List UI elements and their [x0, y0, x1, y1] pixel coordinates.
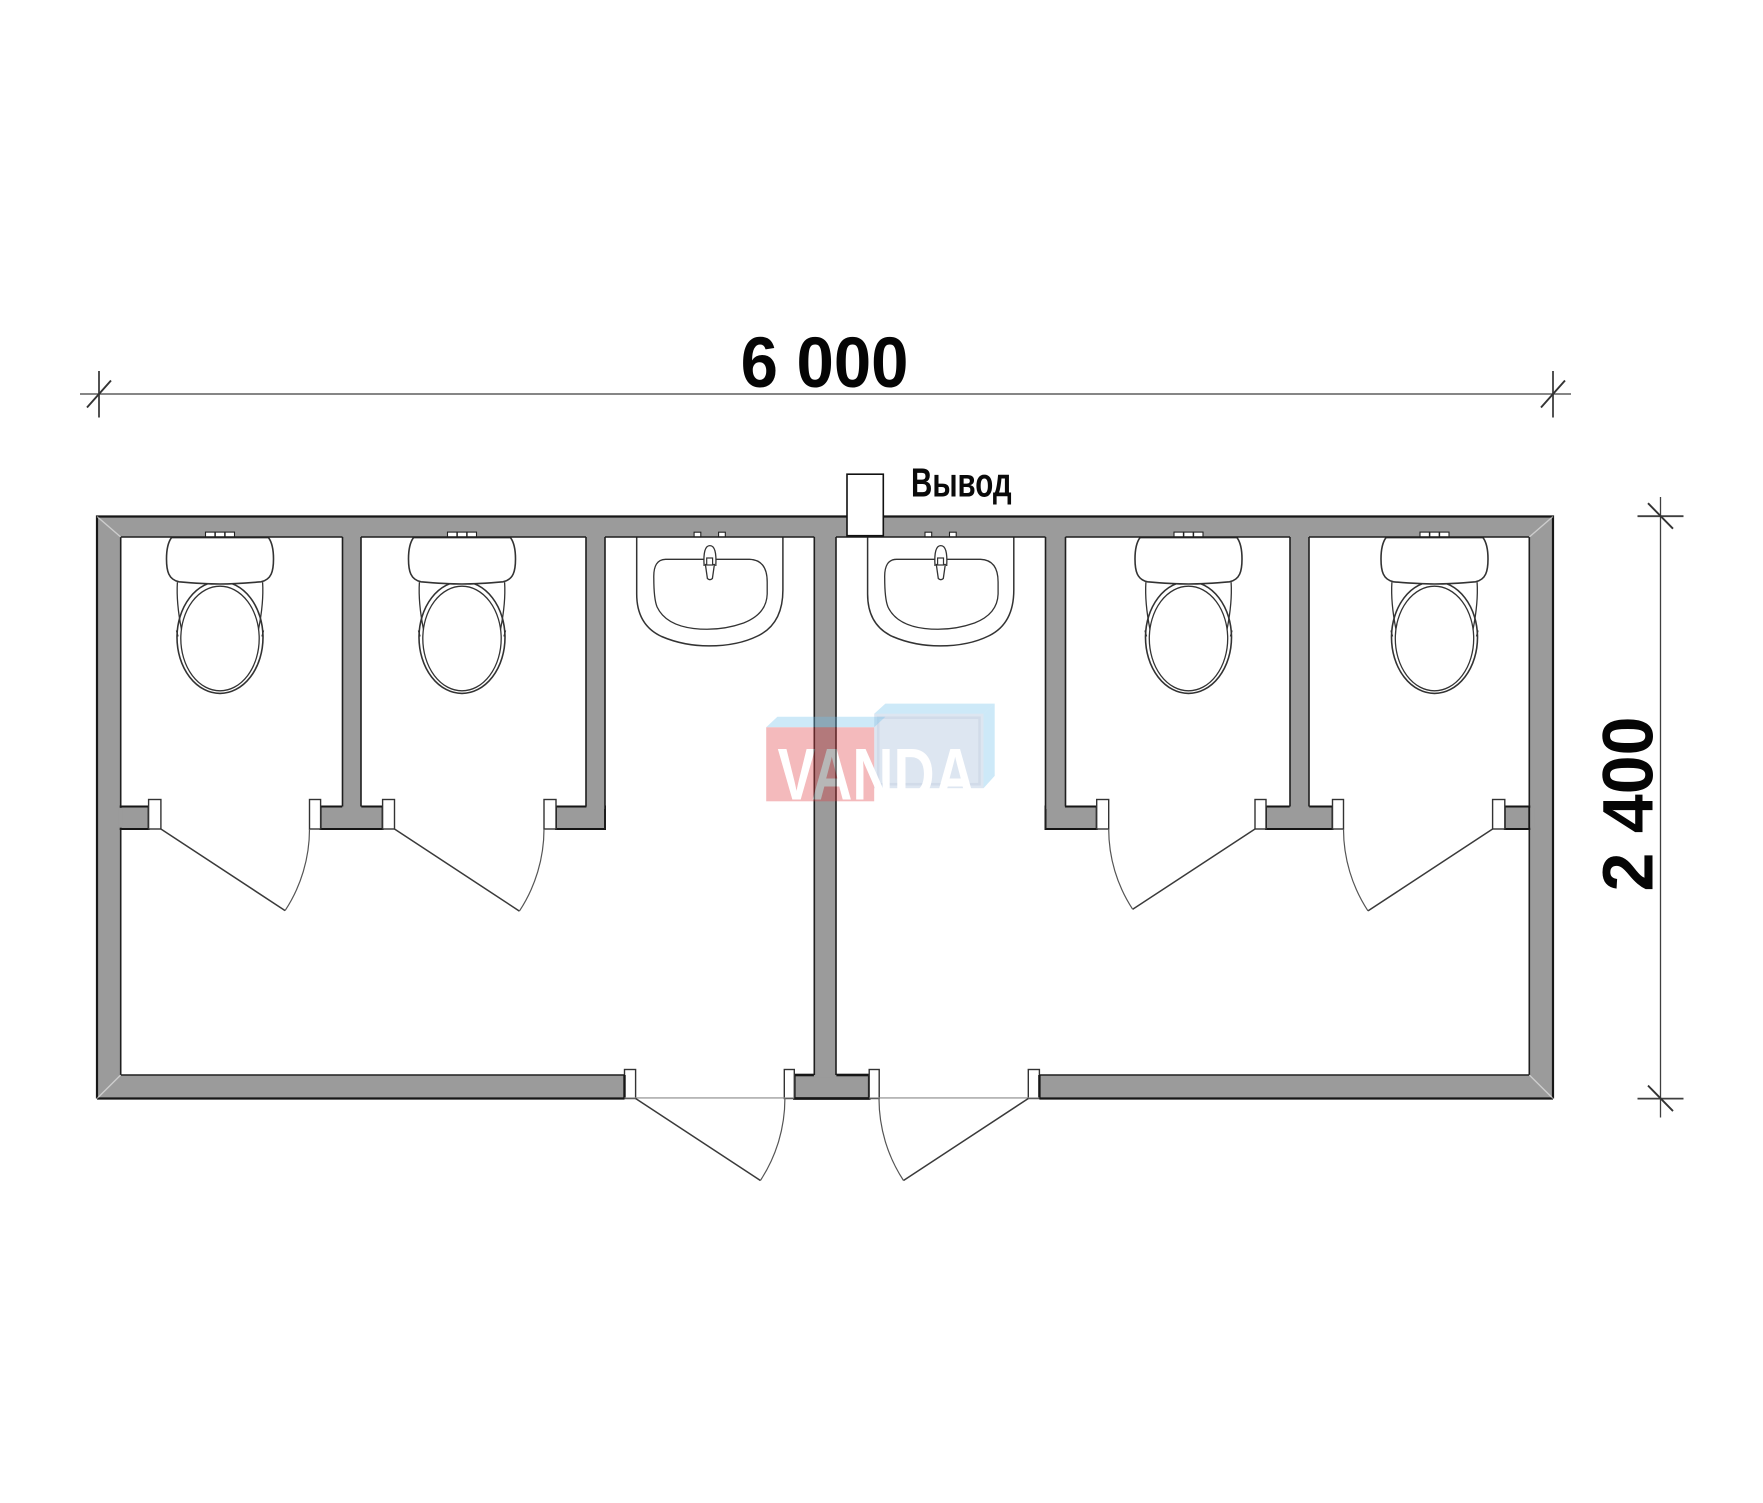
- svg-text:2 400: 2 400: [1588, 717, 1668, 892]
- svg-text:6 000: 6 000: [741, 322, 909, 402]
- svg-text:Вывод: Вывод: [911, 460, 1012, 506]
- svg-text:VANDA: VANDA: [778, 734, 976, 815]
